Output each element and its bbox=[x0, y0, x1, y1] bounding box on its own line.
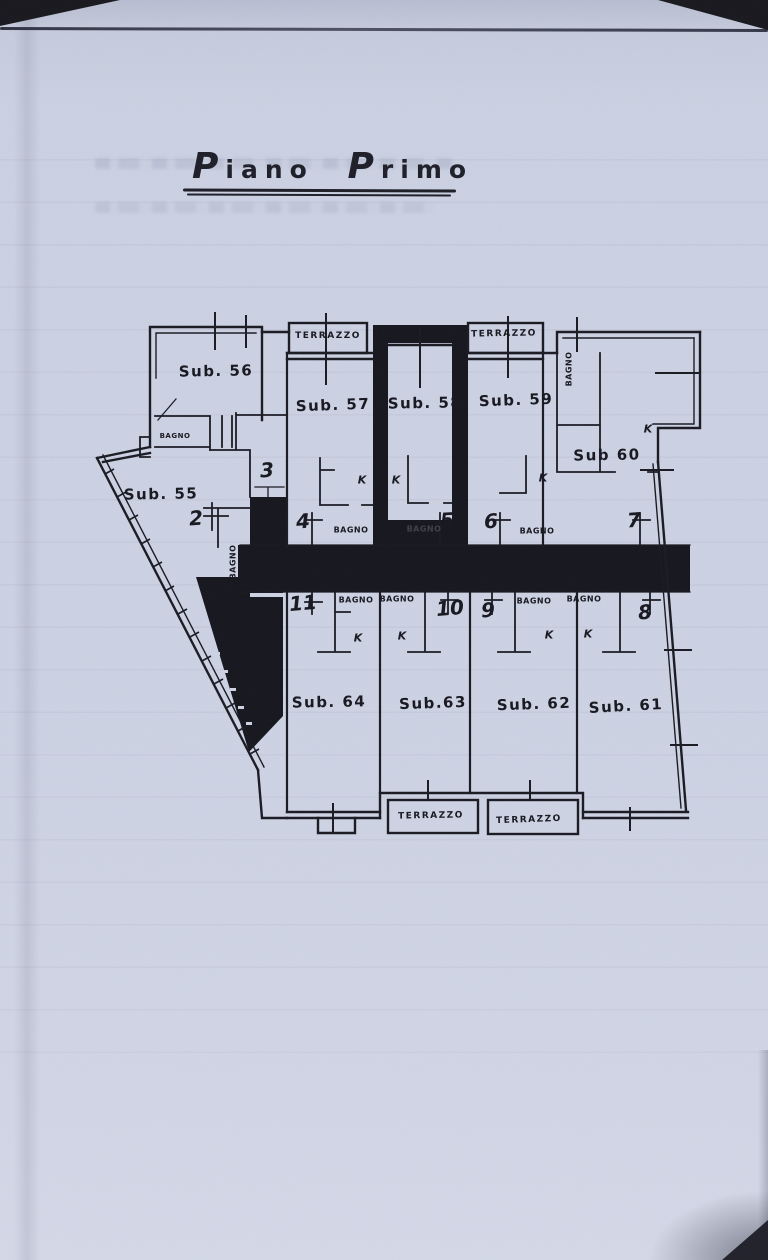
entrance-number-6: 6 bbox=[483, 509, 498, 534]
unit-label-sub58: Sub. 58 bbox=[388, 393, 463, 412]
terrazzo-label-bottom-left: TERRAZZO bbox=[398, 810, 464, 821]
door-mark-k: K bbox=[354, 632, 363, 645]
bagno-label-sub61: BAGNO bbox=[567, 595, 602, 604]
entrance-number-10: 10 bbox=[435, 595, 465, 621]
door-mark-k: K bbox=[584, 628, 593, 641]
bagno-label-sub63: BAGNO bbox=[380, 595, 415, 604]
bagno-label-sub57: BAGNO bbox=[334, 526, 369, 535]
entrance-number-11: 11 bbox=[288, 590, 318, 616]
entrance-number-8: 8 bbox=[637, 600, 653, 625]
door-mark-k: K bbox=[398, 630, 407, 643]
door-mark-k: K bbox=[392, 474, 401, 487]
floor-plan-drawing bbox=[0, 0, 768, 1260]
terrazzo-label-top-left: TERRAZZO bbox=[295, 331, 361, 341]
unit-label-sub60: Sub 60 bbox=[573, 445, 641, 464]
entrance-number-7: 7 bbox=[626, 508, 642, 533]
scanned-floorplan-page: Piano Primo bbox=[0, 0, 768, 1260]
door-mark-k: K bbox=[358, 474, 367, 487]
entrance-number-5: 5 bbox=[439, 508, 454, 533]
unit-label-sub59: Sub. 59 bbox=[478, 390, 553, 411]
unit-label-sub64: Sub. 64 bbox=[292, 692, 367, 711]
bagno-label-sub60-vertical: BAGNO bbox=[565, 352, 574, 387]
bagno-label-sub62: BAGNO bbox=[517, 597, 552, 606]
entrance-number-3: 3 bbox=[259, 458, 274, 483]
stairwell-and-corridor-fill bbox=[196, 325, 690, 752]
unit-label-sub55: Sub. 55 bbox=[124, 484, 199, 503]
unit-label-sub62: Sub. 62 bbox=[496, 694, 571, 715]
bagno-label-sub58: BAGNO bbox=[407, 525, 442, 534]
bagno-label-sub59: BAGNO bbox=[520, 527, 555, 536]
bagno-label-sub55-vertical: BAGNO bbox=[229, 545, 238, 580]
bagno-label-sub64: BAGNO bbox=[339, 596, 374, 605]
unit-label-sub57: Sub. 57 bbox=[295, 395, 370, 416]
entrance-number-2: 2 bbox=[188, 506, 204, 531]
unit-label-sub56: Sub. 56 bbox=[179, 361, 254, 380]
door-mark-k: K bbox=[545, 629, 554, 642]
bagno-label-sub56: BAGNO bbox=[160, 432, 191, 440]
door-mark-k: K bbox=[644, 423, 653, 436]
terrazzo-label-top-right: TERRAZZO bbox=[471, 328, 537, 339]
unit-label-sub63: Sub.63 bbox=[399, 693, 467, 713]
entrance-number-9: 9 bbox=[480, 598, 495, 623]
door-mark-k: K bbox=[539, 472, 548, 485]
entrance-number-4: 4 bbox=[295, 509, 311, 534]
